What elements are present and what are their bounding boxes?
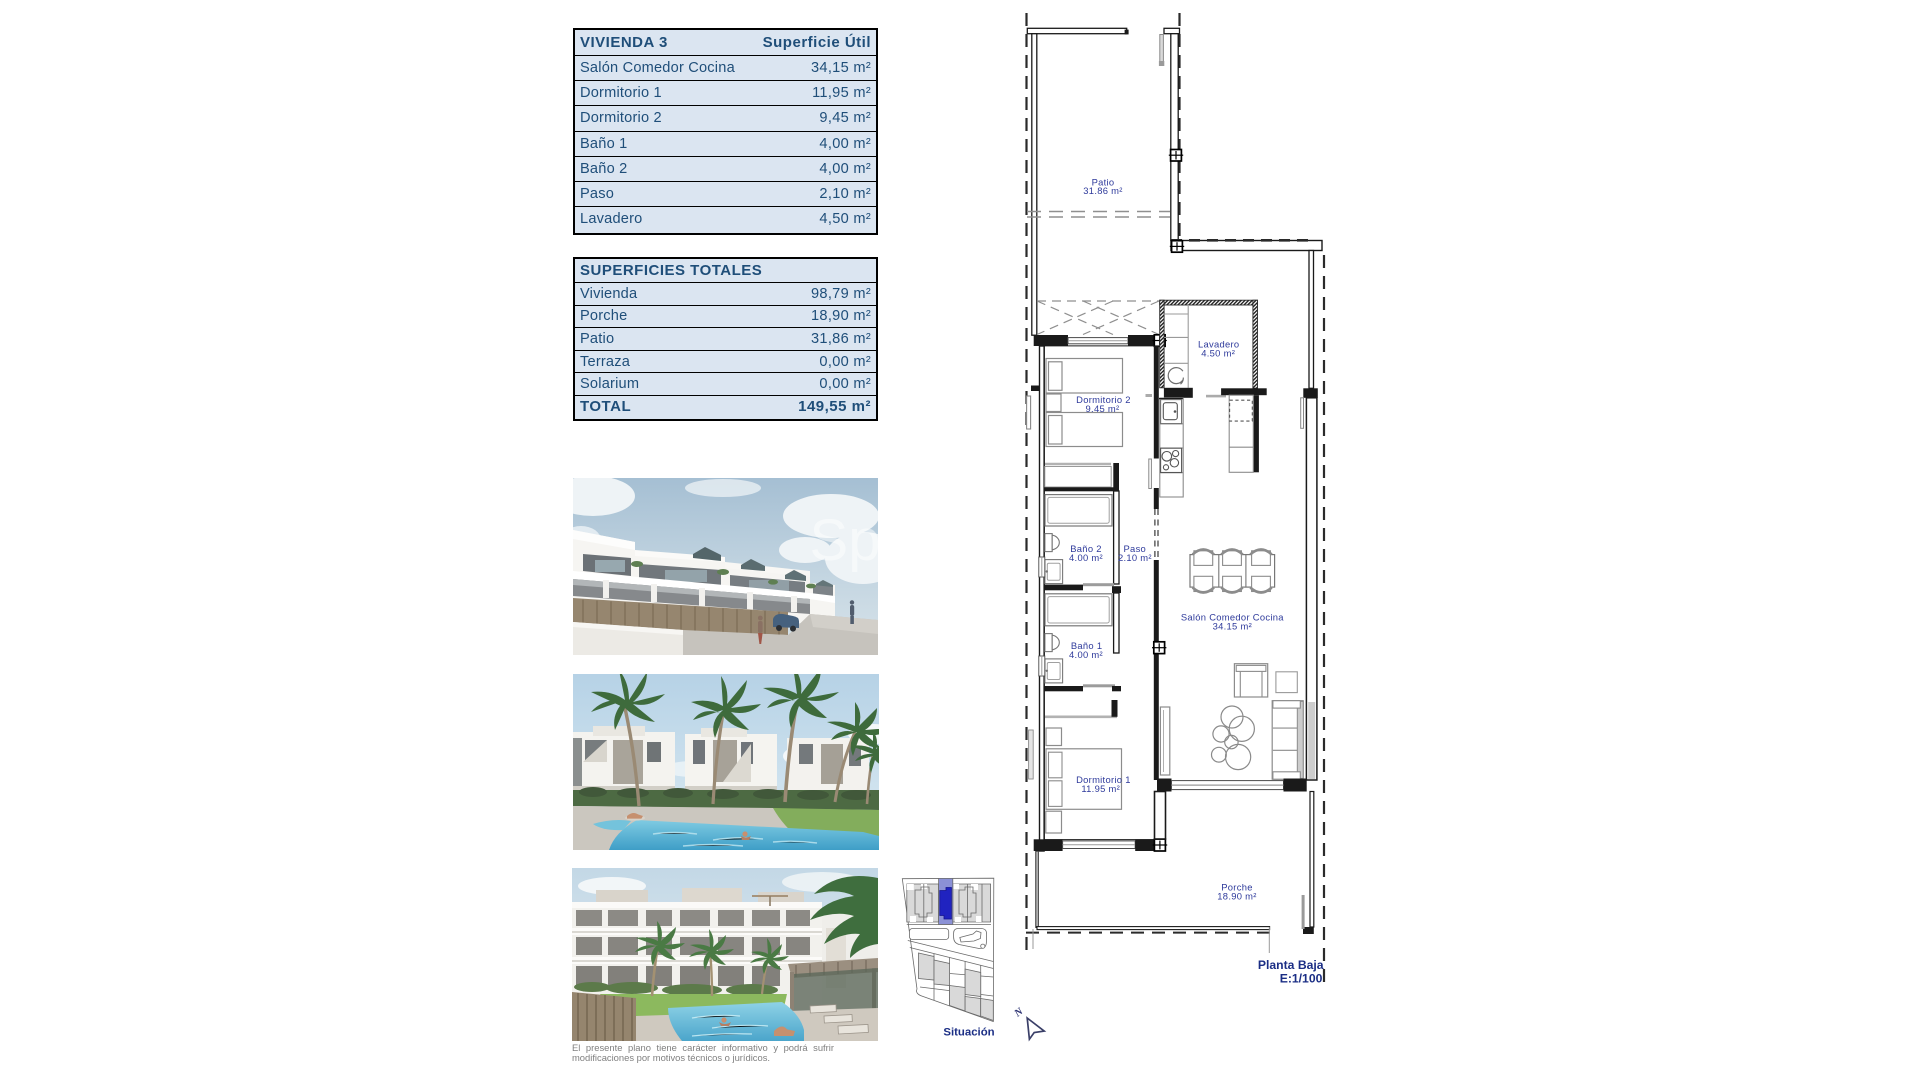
svg-text:Sp: Sp xyxy=(810,508,878,573)
svg-text:34.15 m²: 34.15 m² xyxy=(1213,620,1252,631)
svg-text:E:1/100: E:1/100 xyxy=(1280,972,1323,986)
svg-text:31.86 m²: 31.86 m² xyxy=(1083,185,1122,196)
svg-text:N: N xyxy=(1012,1006,1026,1020)
svg-text:2.10 m²: 2.10 m² xyxy=(1118,552,1152,563)
svg-text:4.00 m²: 4.00 m² xyxy=(1069,552,1103,563)
svg-text:9.45 m²: 9.45 m² xyxy=(1086,403,1120,414)
svg-text:Situación: Situación xyxy=(943,1027,994,1039)
svg-text:Planta Baja: Planta Baja xyxy=(1258,958,1324,972)
svg-text:18.90 m²: 18.90 m² xyxy=(1217,890,1256,901)
svg-text:4.50 m²: 4.50 m² xyxy=(1201,348,1235,359)
svg-text:4.00 m²: 4.00 m² xyxy=(1069,649,1103,660)
svg-text:11.95 m²: 11.95 m² xyxy=(1081,783,1120,794)
